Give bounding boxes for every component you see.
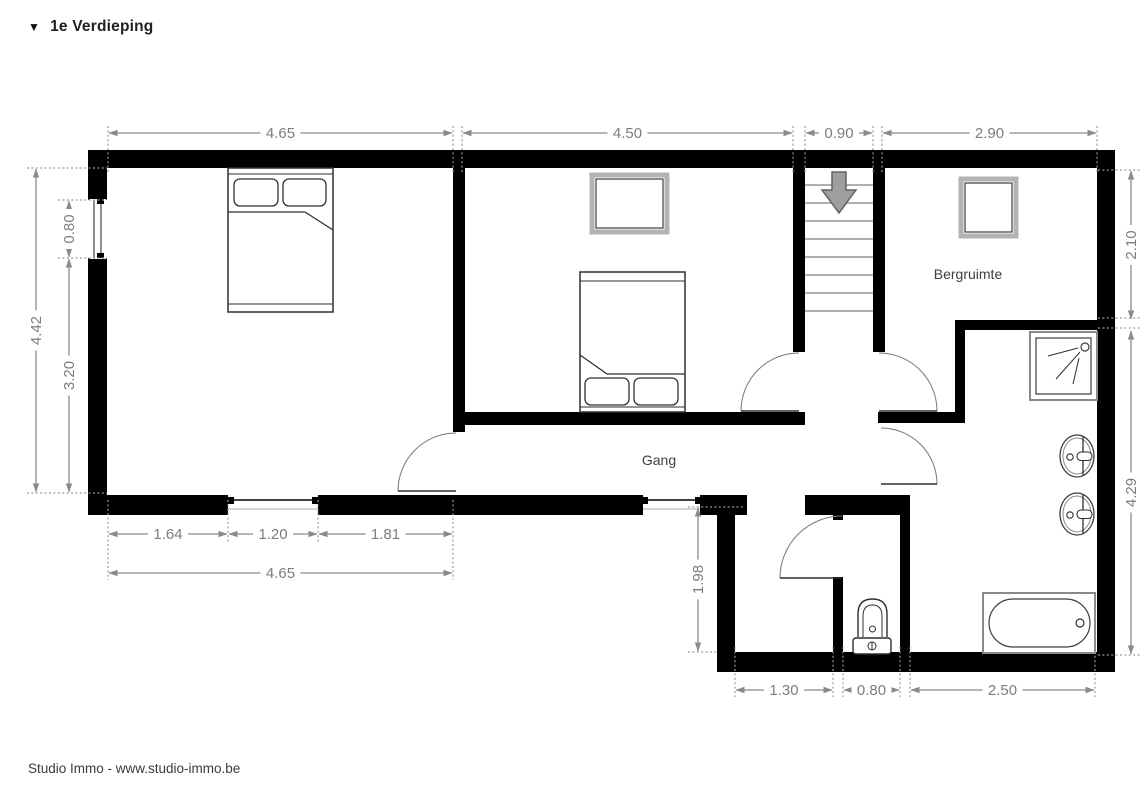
svg-text:1.20: 1.20 (258, 526, 287, 543)
floorplan-svg: 4.654.500.902.901.641.201.814.651.300.80… (0, 0, 1143, 807)
svg-text:2.10: 2.10 (1123, 230, 1140, 259)
svg-text:0.80: 0.80 (857, 682, 886, 699)
dimension-0.90: 0.90 (806, 125, 872, 143)
room-label-bergruimte: Bergruimte (934, 266, 1003, 282)
wall (1097, 150, 1115, 672)
dimension-1.81: 1.81 (319, 526, 452, 544)
svg-text:4.50: 4.50 (613, 125, 642, 142)
dimension-1.20: 1.20 (229, 526, 317, 544)
svg-text:2.50: 2.50 (988, 682, 1017, 699)
bed-second (580, 272, 685, 412)
window-bedroom1-left (89, 199, 106, 259)
window-hall-bottom (643, 497, 700, 509)
svg-text:0.90: 0.90 (824, 125, 853, 142)
dimension-label: 4.65 (261, 125, 301, 143)
wall (805, 495, 910, 515)
door-storage (879, 353, 937, 411)
sink-2 (1060, 493, 1094, 535)
wall (462, 412, 805, 425)
dimension-4.29: 4.29 (1123, 331, 1141, 654)
shower (1030, 332, 1097, 400)
dimension-2.10: 2.10 (1123, 171, 1141, 319)
dimension-0.80: 0.80 (61, 201, 79, 257)
wall (955, 320, 1115, 330)
dimension-2.50: 2.50 (911, 682, 1094, 700)
dimension-label: 1.64 (148, 526, 188, 544)
wall (318, 495, 643, 515)
svg-text:4.65: 4.65 (266, 565, 295, 582)
dimension-1.98: 1.98 (690, 508, 708, 651)
svg-text:0.80: 0.80 (61, 214, 78, 243)
svg-text:2.90: 2.90 (975, 125, 1004, 142)
toilet (853, 599, 891, 654)
wall (873, 168, 885, 352)
wall (88, 495, 228, 515)
dimension-label: 1.20 (253, 526, 293, 544)
cabinet-storage (961, 179, 1016, 236)
wall (955, 320, 965, 423)
svg-text:1.30: 1.30 (769, 682, 798, 699)
door-wc (780, 516, 842, 578)
collapse-triangle-icon: ▼ (28, 21, 40, 33)
stairs-down-arrow-icon (822, 172, 856, 213)
wall (453, 168, 465, 432)
door-wc-swing-arc (780, 516, 842, 578)
wall (833, 577, 843, 655)
wall (88, 150, 1115, 168)
door-bedroom-2 (741, 353, 799, 411)
wall (878, 412, 965, 423)
sink-1 (1060, 435, 1094, 477)
dimension-label: 1.81 (366, 526, 406, 544)
footer-credit: Studio Immo - www.studio-immo.be (28, 761, 240, 776)
room-label-gang: Gang (642, 452, 676, 468)
svg-text:1.81: 1.81 (371, 526, 400, 543)
dimension-label: 4.42 (28, 311, 46, 351)
door-storage-swing-arc (879, 353, 937, 411)
wall (700, 495, 747, 515)
dimension-label: 1.98 (690, 560, 708, 600)
door-bedroom-1-swing-arc (398, 433, 456, 491)
wall (717, 515, 735, 655)
dimension-label: 0.90 (819, 125, 859, 143)
dimension-label: 1.30 (764, 682, 804, 700)
floorplan-page: ▼ 1e Verdieping 4.654.500.902.901.641.20… (0, 0, 1143, 807)
dimension-0.80: 0.80 (844, 682, 899, 700)
door-bedroom-1 (398, 433, 456, 491)
wall (717, 652, 1115, 672)
window-bedroom1-bottom (228, 497, 318, 509)
dimension-label: 0.80 (852, 682, 892, 700)
svg-text:1.98: 1.98 (690, 565, 707, 594)
dimension-2.90: 2.90 (883, 125, 1096, 143)
door-bathroom-swing-arc (881, 428, 937, 484)
dimension-4.42: 4.42 (28, 169, 46, 492)
svg-text:1.64: 1.64 (153, 526, 182, 543)
dimension-1.30: 1.30 (736, 682, 832, 700)
dimension-1.64: 1.64 (109, 526, 227, 544)
svg-text:4.29: 4.29 (1123, 478, 1140, 507)
svg-text:4.65: 4.65 (266, 125, 295, 142)
dimension-label: 4.65 (261, 565, 301, 583)
staircase (805, 172, 873, 311)
door-bathroom (881, 428, 937, 484)
floor-title: 1e Verdieping (50, 18, 153, 36)
dimension-label: 0.80 (61, 209, 79, 249)
dimension-label: 3.20 (61, 356, 79, 396)
wall (793, 168, 805, 352)
dimension-4.50: 4.50 (463, 125, 792, 143)
svg-text:3.20: 3.20 (61, 361, 78, 390)
wardrobe-bedroom-2 (592, 175, 667, 232)
wall (900, 495, 910, 655)
dimension-label: 2.50 (983, 682, 1023, 700)
dimension-label: 4.29 (1123, 473, 1141, 513)
wall (88, 258, 107, 515)
wall (88, 150, 107, 200)
bed-master (228, 168, 333, 312)
bathtub (983, 593, 1095, 653)
svg-text:4.42: 4.42 (28, 316, 45, 345)
dimension-4.65: 4.65 (109, 565, 452, 583)
floor-title-toggle[interactable]: ▼ 1e Verdieping (28, 18, 153, 36)
dimension-4.65: 4.65 (109, 125, 452, 143)
floorplan-canvas: 4.654.500.902.901.641.201.814.651.300.80… (0, 0, 1143, 807)
dimension-label: 2.10 (1123, 225, 1141, 265)
dimension-label: 2.90 (970, 125, 1010, 143)
dimension-3.20: 3.20 (61, 259, 79, 492)
dimension-label: 4.50 (608, 125, 648, 143)
door-bedroom-2-swing-arc (741, 353, 799, 411)
